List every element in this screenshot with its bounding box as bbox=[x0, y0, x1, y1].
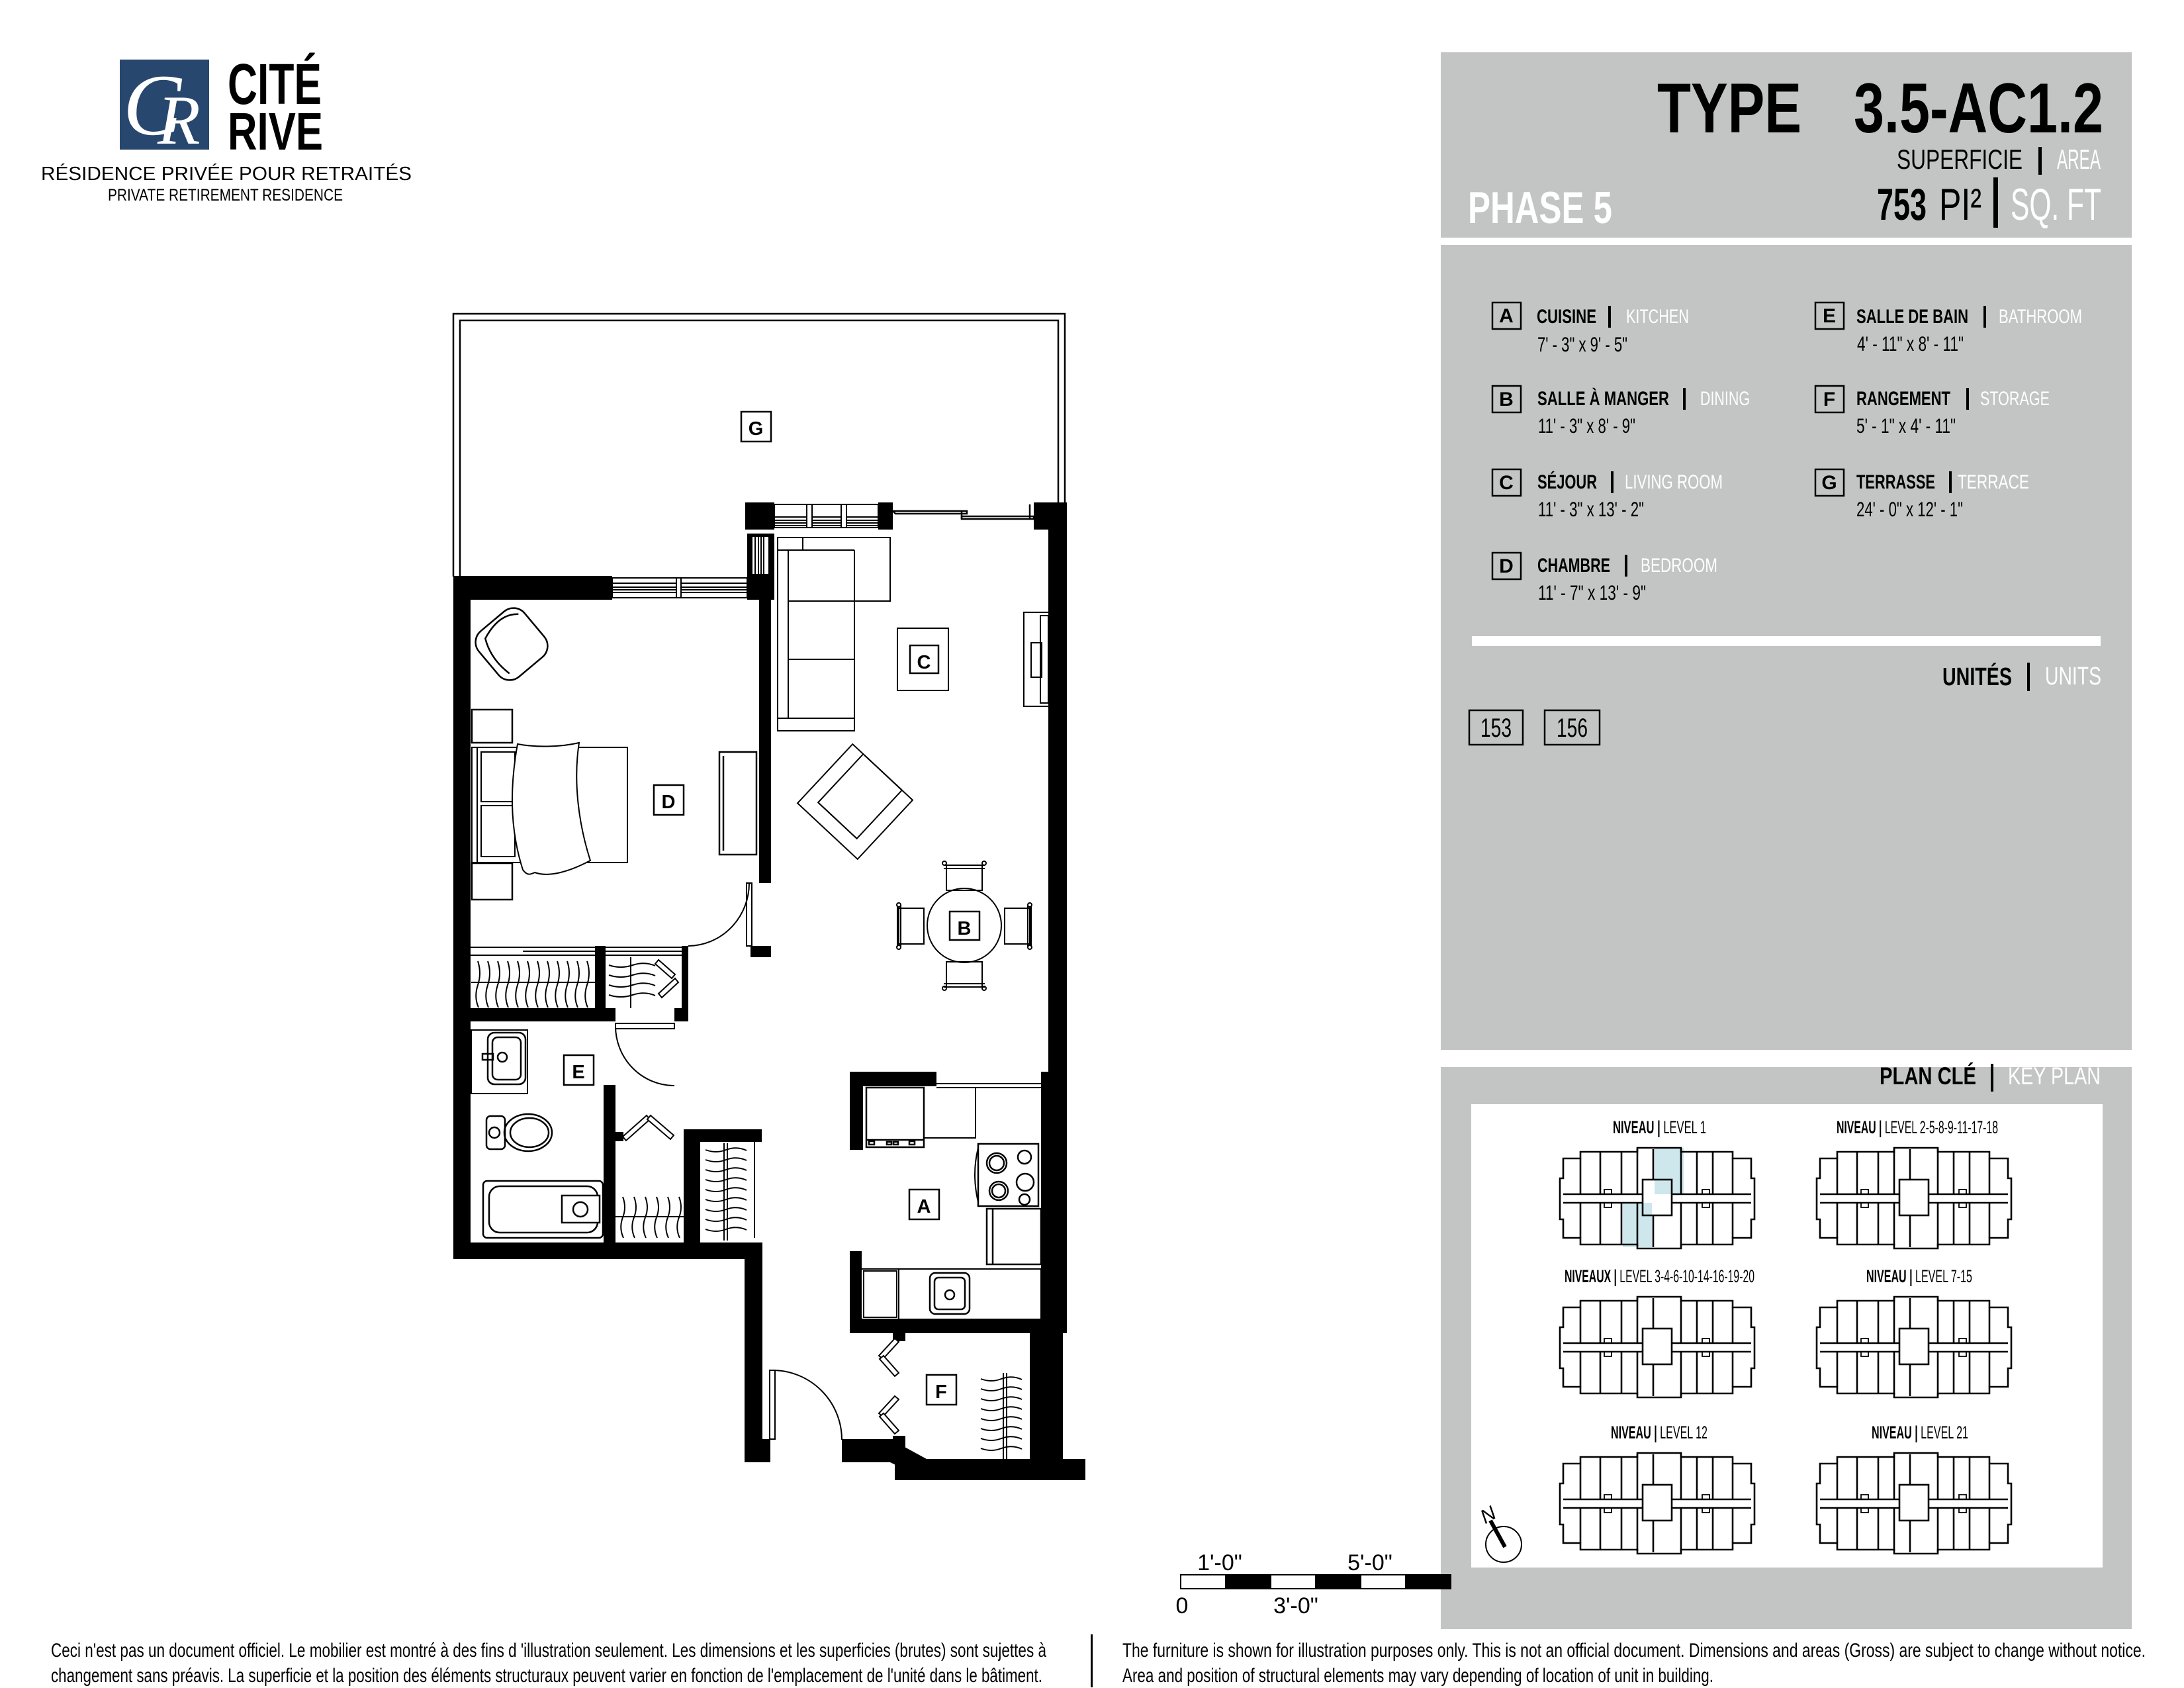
svg-text:TERRACE: TERRACE bbox=[1958, 471, 2029, 493]
svg-text:CUISINE: CUISINE bbox=[1537, 306, 1596, 328]
svg-text:A: A bbox=[917, 1196, 931, 1217]
svg-text:RANGEMENT: RANGEMENT bbox=[1856, 388, 1950, 410]
svg-text:G: G bbox=[749, 418, 764, 440]
svg-text:C: C bbox=[917, 652, 931, 673]
svg-text:11' - 3" x 8' - 9": 11' - 3" x 8' - 9" bbox=[1538, 414, 1635, 438]
svg-text:G: G bbox=[1821, 472, 1837, 494]
svg-text:F: F bbox=[935, 1382, 947, 1403]
svg-text:SALLE DE BAIN: SALLE DE BAIN bbox=[1856, 306, 1968, 328]
svg-text:B: B bbox=[1499, 389, 1514, 410]
svg-text:R: R bbox=[157, 81, 201, 159]
svg-text:D: D bbox=[1499, 555, 1514, 577]
svg-text:PI²: PI² bbox=[1939, 179, 1981, 230]
svg-text:F: F bbox=[1823, 389, 1835, 410]
svg-text:NIVEAU | LEVEL 21: NIVEAU | LEVEL 21 bbox=[1872, 1423, 1968, 1442]
svg-text:0: 0 bbox=[1176, 1593, 1189, 1618]
svg-text:RÉSIDENCE PRIVÉE POUR RETRAITÉ: RÉSIDENCE PRIVÉE POUR RETRAITÉS bbox=[41, 163, 412, 185]
svg-text:SQ. FT: SQ. FT bbox=[2011, 179, 2101, 230]
svg-text:4' - 11" x 8' - 11": 4' - 11" x 8' - 11" bbox=[1857, 332, 1964, 355]
svg-text:PRIVATE RETIREMENT RESIDENCE: PRIVATE RETIREMENT RESIDENCE bbox=[108, 186, 343, 205]
svg-text:TYPE: TYPE bbox=[1657, 68, 1801, 148]
svg-text:N: N bbox=[1477, 1502, 1500, 1528]
svg-text:CHAMBRE: CHAMBRE bbox=[1537, 555, 1610, 577]
svg-text:BEDROOM: BEDROOM bbox=[1641, 555, 1717, 577]
svg-text:AREA: AREA bbox=[2057, 144, 2101, 175]
svg-text:156: 156 bbox=[1557, 714, 1588, 743]
svg-text:PHASE 5: PHASE 5 bbox=[1468, 183, 1612, 233]
svg-text:KEY PLAN: KEY PLAN bbox=[2008, 1062, 2101, 1090]
svg-text:C: C bbox=[1499, 472, 1514, 494]
svg-text:NIVEAU | LEVEL 12: NIVEAU | LEVEL 12 bbox=[1611, 1423, 1707, 1442]
svg-text:DINING: DINING bbox=[1700, 388, 1750, 410]
svg-text:B: B bbox=[958, 918, 972, 939]
svg-text:11' - 7" x 13' - 9": 11' - 7" x 13' - 9" bbox=[1538, 581, 1646, 604]
svg-text:UNITÉS: UNITÉS bbox=[1942, 662, 2012, 691]
svg-text:SUPERFICIE: SUPERFICIE bbox=[1897, 144, 2023, 175]
svg-text:11' - 3" x 13' - 2": 11' - 3" x 13' - 2" bbox=[1538, 497, 1644, 521]
svg-text:E: E bbox=[1823, 305, 1836, 327]
svg-text:753: 753 bbox=[1877, 179, 1927, 230]
svg-text:SÉJOUR: SÉJOUR bbox=[1537, 471, 1597, 493]
svg-text:NIVEAUX | LEVEL 3-4-6-10-14-16: NIVEAUX | LEVEL 3-4-6-10-14-16-19-20 bbox=[1565, 1266, 1754, 1286]
svg-text:BATHROOM: BATHROOM bbox=[1999, 306, 2082, 328]
svg-text:5' - 1" x 4' - 11": 5' - 1" x 4' - 11" bbox=[1856, 414, 1956, 438]
svg-text:24' - 0" x 12' - 1": 24' - 0" x 12' - 1" bbox=[1856, 497, 1963, 521]
svg-text:E: E bbox=[572, 1062, 584, 1083]
svg-text:153: 153 bbox=[1480, 714, 1512, 743]
svg-text:SALLE À MANGER: SALLE À MANGER bbox=[1537, 387, 1669, 410]
svg-text:1'-0": 1'-0" bbox=[1197, 1550, 1242, 1575]
svg-text:NIVEAU | LEVEL 2-5-8-9-11-17-1: NIVEAU | LEVEL 2-5-8-9-11-17-18 bbox=[1837, 1117, 1998, 1137]
svg-text:D: D bbox=[662, 792, 676, 813]
svg-text:PLAN CLÉ: PLAN CLÉ bbox=[1880, 1062, 1976, 1090]
svg-text:UNITS: UNITS bbox=[2045, 663, 2101, 690]
svg-text:NIVEAU | LEVEL 7-15: NIVEAU | LEVEL 7-15 bbox=[1866, 1266, 1972, 1286]
svg-text:3.5-AC1.2: 3.5-AC1.2 bbox=[1854, 68, 2103, 148]
svg-text:RIVE: RIVE bbox=[228, 102, 323, 161]
svg-text:KITCHEN: KITCHEN bbox=[1626, 306, 1689, 328]
svg-text:Ceci n'est pas un document off: Ceci n'est pas un document officiel. Le … bbox=[51, 1640, 1046, 1662]
svg-text:NIVEAU | LEVEL 1: NIVEAU | LEVEL 1 bbox=[1613, 1117, 1706, 1137]
svg-text:Area and position of structura: Area and position of structural elements… bbox=[1122, 1665, 1713, 1687]
svg-text:The furniture is shown for ill: The furniture is shown for illustration … bbox=[1122, 1640, 2146, 1662]
svg-text:STORAGE: STORAGE bbox=[1980, 388, 2050, 410]
svg-text:LIVING ROOM: LIVING ROOM bbox=[1625, 471, 1723, 493]
svg-text:7' - 3" x 9' - 5": 7' - 3" x 9' - 5" bbox=[1537, 332, 1627, 356]
svg-text:3'-0": 3'-0" bbox=[1273, 1593, 1318, 1618]
svg-text:A: A bbox=[1499, 305, 1514, 327]
svg-text:changement sans préavis. La su: changement sans préavis. La superficie e… bbox=[51, 1665, 1042, 1687]
svg-text:5'-0": 5'-0" bbox=[1347, 1550, 1392, 1575]
svg-text:TERRASSE: TERRASSE bbox=[1856, 471, 1935, 493]
